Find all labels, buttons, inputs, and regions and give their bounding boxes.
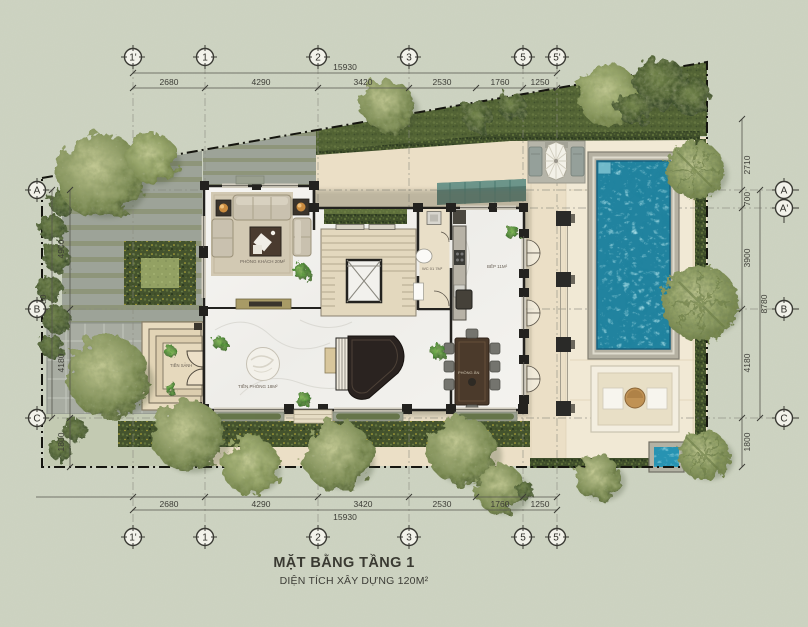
svg-text:1': 1' <box>129 53 137 64</box>
svg-text:1760: 1760 <box>491 77 510 87</box>
svg-text:2680: 2680 <box>160 499 179 509</box>
svg-text:2710: 2710 <box>742 155 752 174</box>
svg-text:4290: 4290 <box>252 499 271 509</box>
svg-text:2530: 2530 <box>433 77 452 87</box>
svg-text:1: 1 <box>202 533 208 544</box>
svg-text:1250: 1250 <box>531 77 550 87</box>
svg-text:1: 1 <box>202 53 208 64</box>
svg-text:5': 5' <box>553 533 561 544</box>
svg-text:2: 2 <box>315 53 321 64</box>
svg-text:1800: 1800 <box>56 432 66 451</box>
svg-text:TIỀN PHÒNG 18M²: TIỀN PHÒNG 18M² <box>238 383 278 389</box>
svg-text:2530: 2530 <box>433 499 452 509</box>
svg-text:1760: 1760 <box>491 499 510 509</box>
svg-text:PHÒNG ĂN: PHÒNG ĂN <box>458 370 479 375</box>
svg-text:A': A' <box>780 204 789 215</box>
svg-text:C: C <box>780 414 787 425</box>
svg-text:1250: 1250 <box>531 499 550 509</box>
svg-text:A: A <box>34 186 41 197</box>
svg-text:4900: 4900 <box>56 239 66 258</box>
svg-text:DIỆN TÍCH XÂY DỰNG 120M²: DIỆN TÍCH XÂY DỰNG 120M² <box>280 574 429 587</box>
svg-text:3: 3 <box>406 533 412 544</box>
svg-text:3900: 3900 <box>742 248 752 267</box>
svg-text:4180: 4180 <box>742 353 752 372</box>
svg-text:2680: 2680 <box>160 77 179 87</box>
svg-text:4290: 4290 <box>252 77 271 87</box>
svg-text:MẶT BẰNG TẦNG 1: MẶT BẰNG TẦNG 1 <box>273 553 414 571</box>
svg-text:8780: 8780 <box>759 294 769 313</box>
svg-text:WC 01 7M²: WC 01 7M² <box>422 266 443 271</box>
svg-text:1': 1' <box>129 533 137 544</box>
svg-text:15930: 15930 <box>333 512 357 522</box>
svg-text:5: 5 <box>520 533 526 544</box>
svg-text:B: B <box>781 305 788 316</box>
svg-text:4180: 4180 <box>56 353 66 372</box>
svg-text:B: B <box>34 305 41 316</box>
svg-text:5': 5' <box>553 53 561 64</box>
svg-text:PHÒNG KHÁCH 20M²: PHÒNG KHÁCH 20M² <box>240 258 286 264</box>
svg-text:3420: 3420 <box>354 499 373 509</box>
svg-text:1800: 1800 <box>742 432 752 451</box>
svg-text:700: 700 <box>742 192 752 206</box>
svg-text:15930: 15930 <box>333 62 357 72</box>
svg-text:BẾP 11M²: BẾP 11M² <box>487 263 508 269</box>
svg-text:5: 5 <box>520 53 526 64</box>
svg-text:TIỀN SẢNH: TIỀN SẢNH <box>170 363 192 368</box>
svg-text:3420: 3420 <box>354 77 373 87</box>
svg-text:C: C <box>33 414 40 425</box>
svg-text:A: A <box>781 186 788 197</box>
svg-text:2: 2 <box>315 533 321 544</box>
svg-text:3: 3 <box>406 53 412 64</box>
